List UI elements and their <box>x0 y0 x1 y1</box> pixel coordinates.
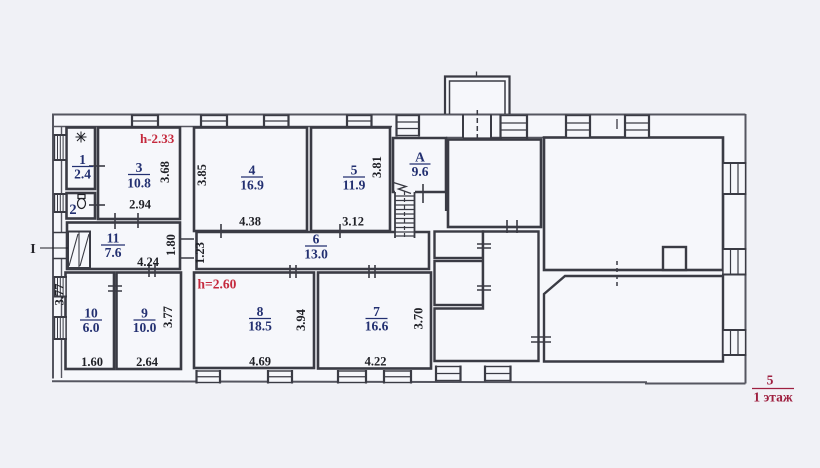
svg-text:1.80: 1.80 <box>164 234 178 256</box>
svg-text:3.77: 3.77 <box>53 284 67 306</box>
svg-text:13.0: 13.0 <box>304 247 328 262</box>
svg-text:4: 4 <box>249 163 256 178</box>
svg-text:А: А <box>415 150 425 165</box>
svg-text:9.6: 9.6 <box>412 164 429 179</box>
svg-text:10.0: 10.0 <box>133 320 157 335</box>
svg-text:1.60: 1.60 <box>81 355 103 369</box>
svg-text:5: 5 <box>351 163 358 178</box>
svg-text:3.77: 3.77 <box>161 306 175 328</box>
svg-text:10.8: 10.8 <box>127 176 151 191</box>
svg-text:18.5: 18.5 <box>248 319 272 334</box>
svg-text:4.22: 4.22 <box>365 355 387 369</box>
svg-text:4.69: 4.69 <box>249 355 271 369</box>
svg-text:3.85: 3.85 <box>195 164 209 186</box>
svg-text:2.4: 2.4 <box>74 167 91 182</box>
svg-text:9: 9 <box>141 306 148 321</box>
svg-text:7.6: 7.6 <box>105 245 122 260</box>
svg-text:1.23: 1.23 <box>193 242 207 264</box>
svg-text:16.9: 16.9 <box>240 178 264 193</box>
svg-text:h-2.33: h-2.33 <box>140 131 175 146</box>
svg-text:3.81: 3.81 <box>370 156 384 178</box>
svg-text:2.94: 2.94 <box>129 198 152 212</box>
svg-text:2: 2 <box>69 202 76 218</box>
svg-text:4.24: 4.24 <box>137 255 160 269</box>
svg-text:3.68: 3.68 <box>158 161 172 183</box>
svg-text:16.6: 16.6 <box>365 319 389 334</box>
svg-text:10: 10 <box>84 306 98 321</box>
svg-text:6: 6 <box>313 232 320 247</box>
svg-text:I: I <box>30 242 35 257</box>
svg-text:3.12: 3.12 <box>342 215 364 229</box>
svg-text:3.94: 3.94 <box>294 308 308 331</box>
svg-text:1: 1 <box>79 152 86 167</box>
svg-text:5: 5 <box>767 373 774 388</box>
svg-text:7: 7 <box>373 304 380 319</box>
svg-text:3.70: 3.70 <box>412 308 426 330</box>
svg-text:11.9: 11.9 <box>343 178 366 193</box>
svg-text:3: 3 <box>136 160 143 175</box>
svg-text:h=2.60: h=2.60 <box>198 277 237 292</box>
svg-text:4.38: 4.38 <box>239 215 261 229</box>
svg-text:11: 11 <box>107 231 120 246</box>
svg-text:8: 8 <box>257 304 264 319</box>
svg-text:6.0: 6.0 <box>83 320 100 335</box>
svg-text:2.64: 2.64 <box>136 355 159 369</box>
svg-text:1 этаж: 1 этаж <box>753 390 793 405</box>
